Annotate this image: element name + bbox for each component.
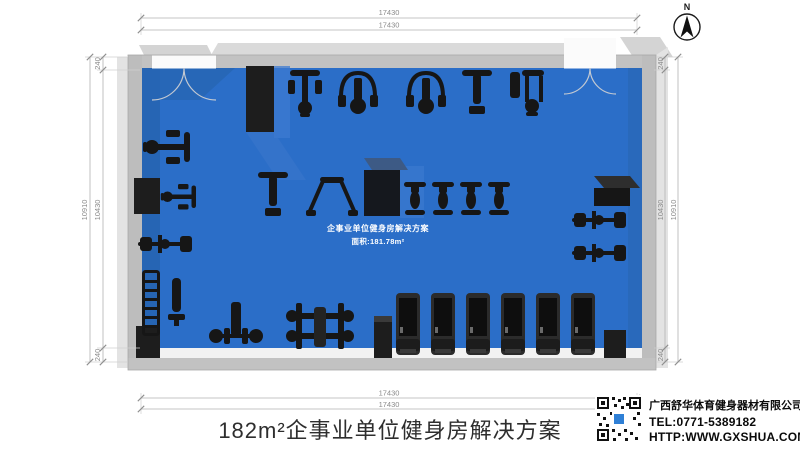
dimension-lines-top: 17430 17430 [138, 8, 640, 35]
treadmill-icon [501, 293, 525, 355]
structural-column-icon [246, 66, 274, 132]
dimension-label: 240 [93, 349, 102, 362]
dimension-label: 10430 [93, 200, 102, 221]
floor-shadow-right [628, 68, 642, 348]
treadmill-icon [396, 293, 420, 355]
plan-area-label: 面积:181.78m² [352, 236, 405, 246]
structural-column-icon [604, 330, 626, 358]
treadmill-icon [571, 293, 595, 355]
structural-column-icon [134, 178, 160, 214]
dimension-label: 10910 [80, 200, 89, 221]
gym-floor-plan: 企事业单位健身房解决方案 面积:181.78m² 17430 17430 174… [0, 0, 800, 450]
dimension-label: 17430 [379, 8, 400, 17]
door-opening-right [564, 38, 616, 69]
company-name: 广西舒华体育健身器材有限公司 [649, 398, 800, 412]
treadmill-icon [536, 293, 560, 355]
structural-column-icon [364, 170, 400, 216]
wall-outer-left [117, 57, 128, 368]
structural-column-icon [374, 322, 392, 358]
company-tel: TEL:0771-5389182 [649, 415, 756, 429]
treadmill-icon [466, 293, 490, 355]
qr-code-icon [595, 395, 643, 443]
door-opening-left [152, 56, 216, 69]
plan-name-label: 企事业单位健身房解决方案 [326, 223, 429, 233]
column-light-band [274, 66, 290, 138]
treadmill-icon [431, 293, 455, 355]
dimension-label: 17430 [379, 400, 400, 409]
column-top-face [374, 316, 392, 322]
dimension-label: 17430 [379, 21, 400, 30]
north-label: N [684, 2, 691, 12]
dimension-label: 240 [656, 349, 665, 362]
wall-right [642, 55, 656, 370]
dimension-label: 10430 [656, 200, 665, 221]
north-arrow: N [674, 2, 700, 40]
company-website: HTTP:WWW.GXSHUA.COM [649, 430, 800, 444]
company-info-block: 广西舒华体育健身器材有限公司 TEL:0771-5389182 HTTP:WWW… [595, 395, 800, 444]
structural-column-icon [594, 188, 630, 206]
dimension-label: 10910 [669, 200, 678, 221]
qr-logo [614, 414, 624, 424]
dimension-label: 240 [656, 57, 665, 70]
dimension-label: 17430 [379, 389, 400, 398]
wall-bottom [128, 358, 656, 370]
structural-column-icon [136, 326, 160, 358]
dimension-label: 240 [93, 57, 102, 70]
gym-floorplan-page: 企事业单位健身房解决方案 面积:181.78m² 17430 17430 174… [0, 0, 800, 450]
page-title: 182m²企事业单位健身房解决方案 [218, 418, 561, 443]
wall-top-face [211, 43, 604, 55]
dimension-lines-bottom: 17430 17430 [138, 389, 640, 415]
squat-rack-icon [286, 303, 354, 349]
